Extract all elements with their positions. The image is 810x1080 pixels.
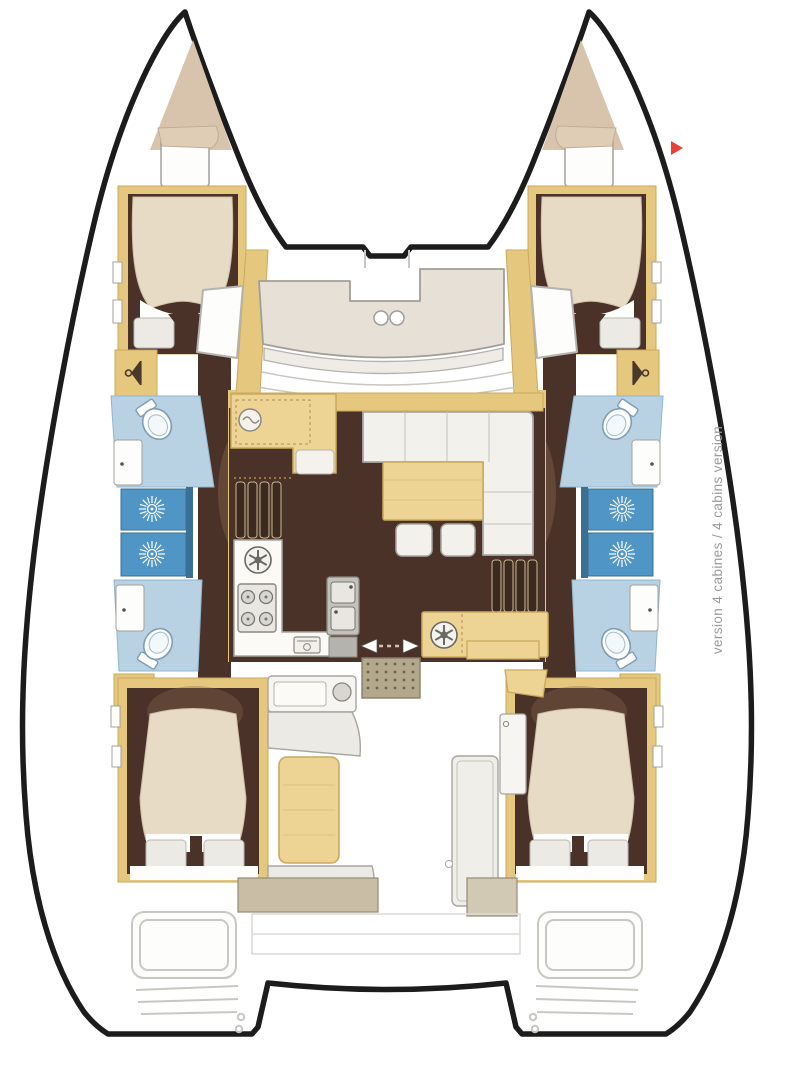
oven-icon — [294, 637, 320, 653]
stool — [396, 524, 432, 556]
cockpit-grate — [362, 658, 420, 698]
floorplan-canvas: version 4 cabines / 4 cabins version — [0, 0, 810, 1080]
aft-step-box — [467, 878, 517, 916]
nav-sink-icon — [239, 409, 261, 431]
cupholder — [390, 311, 404, 325]
version-caption: version 4 cabines / 4 cabins version — [710, 426, 725, 654]
catamaran-floorplan-page: version 4 cabines / 4 cabins version — [0, 0, 810, 1080]
stool — [441, 524, 475, 556]
nav-seat — [296, 450, 334, 474]
cockpit-wet-bar — [268, 676, 356, 712]
stove-icon — [238, 584, 276, 632]
saloon-table — [383, 462, 483, 520]
cupholder — [374, 311, 388, 325]
red-arrow-marker — [671, 141, 683, 155]
aft-bench — [238, 878, 378, 912]
double-sink-icon — [327, 577, 359, 657]
